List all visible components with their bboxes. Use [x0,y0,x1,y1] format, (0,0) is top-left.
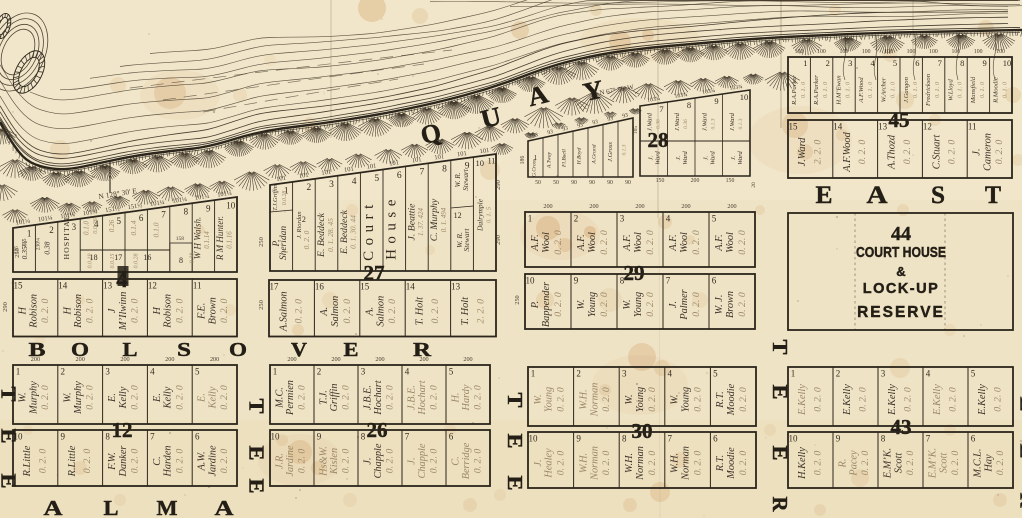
svg-text:Berridge: Berridge [461,442,472,479]
svg-text:0. 2. 0: 0. 2. 0 [82,449,93,474]
svg-text:101: 101 [366,162,377,170]
svg-text:5: 5 [712,214,717,224]
svg-text:0. 1. 0: 0. 1. 0 [912,81,919,98]
svg-text:100: 100 [996,49,1005,55]
svg-text:Hochart: Hochart [417,379,428,415]
svg-text:0. 2. 0: 0. 2. 0 [950,451,961,476]
svg-text:100: 100 [907,49,916,55]
svg-text:14: 14 [406,282,416,292]
svg-text:2: 2 [576,369,581,379]
svg-text:101: 101 [344,166,355,174]
svg-text:100: 100 [862,49,871,55]
svg-text:3: 3 [848,58,852,68]
svg-text:W.: W. [576,299,587,309]
svg-text:100: 100 [884,49,893,55]
svg-text:0. 2. 0: 0. 2. 0 [692,451,703,476]
svg-text:Robison: Robison [163,294,174,329]
svg-text:2: 2 [317,367,322,377]
svg-text:0. 2. 0: 0. 2. 0 [342,299,353,324]
svg-text:1: 1 [16,367,21,377]
svg-text:0. 2. 0: 0. 2. 0 [947,387,958,412]
svg-text:0. 2. 0: 0. 2. 0 [296,385,307,410]
svg-text:Scott: Scott [893,452,904,474]
svg-text:6: 6 [139,213,144,223]
svg-text:0.0.28: 0.0.28 [282,191,288,206]
svg-text:Palmer: Palmer [679,288,690,320]
svg-text:W.: W. [624,394,635,404]
svg-text:A: A [44,496,64,518]
svg-text:10: 10 [526,276,536,286]
svg-text:J.Ward: J.Ward [797,137,808,167]
svg-text:0. 2. 0: 0. 2. 0 [737,230,748,255]
svg-text:J.: J. [675,155,682,160]
svg-text:W.: W. [533,394,544,404]
svg-text:0. 2. 0: 0. 2. 0 [645,230,656,255]
svg-text:J.Ward: J.Ward [702,112,709,131]
svg-text:0.1.0: 0.1.0 [152,222,161,237]
svg-text:J.: J. [668,301,679,308]
svg-text:200: 200 [727,203,736,210]
svg-text:200: 200 [76,356,85,363]
svg-text:E.: E. [197,393,208,403]
svg-text:0. 2. 0: 0. 2. 0 [219,449,230,474]
svg-text:0. 2. 0: 0. 2. 0 [601,387,612,412]
svg-text:0.1.14: 0.1.14 [203,231,211,249]
svg-text:11: 11 [193,281,202,291]
svg-text:Permien: Permien [285,380,296,416]
svg-text:Hs&W.: Hs&W. [318,446,329,477]
svg-text:J.Ward: J.Ward [674,112,681,131]
svg-text:0.1.4: 0.1.4 [129,220,138,235]
svg-text:Ward: Ward [737,150,744,164]
svg-text:9: 9 [576,434,581,444]
svg-text:Pacey: Pacey [848,450,859,477]
svg-text:290: 290 [495,180,502,190]
svg-text:0. 2. 0: 0. 2. 0 [556,451,567,476]
svg-text:Robison: Robison [28,294,39,329]
svg-text:0. 2. 0: 0. 2. 0 [40,385,51,410]
svg-text:290: 290 [2,302,9,312]
svg-text:J.R.: J.R. [274,453,285,469]
svg-text:7: 7 [668,434,673,444]
svg-text:T. Holt: T. Holt [460,296,471,326]
svg-text:9: 9 [61,432,66,442]
svg-text:8: 8 [179,256,183,265]
svg-text:Robison: Robison [73,294,84,329]
svg-text:R.A.Parker: R.A.Parker [813,75,820,106]
svg-text:1: 1 [531,369,536,379]
svg-text:0. 2. 0: 0. 2. 0 [947,140,958,165]
svg-text:H.Kelly: H.Kelly [797,447,808,480]
svg-text:M.C.L.: M.C.L. [973,449,984,479]
svg-text:8: 8 [620,276,625,286]
svg-text:235: 235 [22,239,28,248]
svg-text:6: 6 [915,58,919,68]
svg-text:A: A [867,182,888,209]
svg-text:5: 5 [116,216,121,226]
svg-text:3: 3 [361,367,366,377]
svg-text:0. 2. 0: 0. 2. 0 [691,292,702,317]
svg-text:200: 200 [331,356,340,363]
svg-text:0. 1. 0: 0. 1. 0 [889,81,896,98]
svg-text:0. 2. 0: 0. 2. 0 [860,451,871,476]
svg-text:10: 10 [475,158,484,168]
svg-text:E: E [245,479,269,494]
svg-text:10: 10 [1003,58,1012,68]
svg-text:Ward: Ward [654,150,661,164]
svg-text:Young: Young [633,292,644,317]
svg-text:Kelly: Kelly [163,386,174,409]
svg-text:A.F.: A.F. [668,234,679,251]
svg-text:A.W.: A.W. [197,451,208,471]
svg-text:A.F.: A.F. [530,234,541,251]
svg-text:4: 4 [666,214,671,224]
svg-text:7: 7 [926,434,931,444]
svg-text:M: M [157,496,178,518]
svg-text:12: 12 [148,281,157,291]
svg-text:43: 43 [891,415,912,439]
svg-text:7: 7 [161,210,166,220]
svg-text:0. 2. 0: 0. 2. 0 [691,230,702,255]
svg-text:Wool: Wool [725,232,736,253]
svg-text:0.1.3: 0.1.3 [622,144,628,155]
svg-text:A.Grund: A.Grund [592,144,598,164]
svg-text:0. 2. 0: 0. 2. 0 [994,140,1005,165]
svg-text:Stewart: Stewart [462,228,471,252]
svg-text:250: 250 [258,300,265,310]
svg-text:6: 6 [712,276,717,286]
svg-text:H.Boyd: H.Boyd [577,147,583,165]
svg-text:0. 2. 0: 0. 2. 0 [296,449,307,474]
svg-text:Murphy: Murphy [73,381,84,415]
svg-text:8: 8 [442,165,447,175]
svg-text:H.M’Ewan: H.M’Ewan [836,75,843,106]
svg-text:200: 200 [543,203,552,210]
svg-text:9: 9 [836,434,841,444]
svg-text:15: 15 [14,281,24,291]
svg-text:E: E [503,476,527,491]
svg-text:R.Little: R.Little [67,445,78,477]
svg-text:20: 20 [751,182,757,188]
svg-text:165: 165 [633,126,639,135]
svg-text:14: 14 [58,281,68,291]
svg-text:16: 16 [143,253,151,262]
svg-text:J.B.E.: J.B.E. [362,385,373,410]
svg-text:7: 7 [938,58,942,68]
svg-text:5: 5 [449,367,454,377]
svg-text:0. 2. 0: 0. 2. 0 [428,385,439,410]
svg-text:0. 2. 0: 0. 2. 0 [857,387,868,412]
svg-text:J.: J. [972,148,983,155]
svg-text:Jardine: Jardine [285,445,296,477]
svg-text:T: T [0,387,21,402]
svg-text:W.H.: W.H. [578,389,589,409]
svg-text:0. 2. 0: 0. 2. 0 [40,298,51,323]
svg-text:101: 101 [389,159,400,167]
svg-text:Court: Court [361,199,377,261]
svg-text:29: 29 [624,261,645,285]
svg-text:0. 2. 0: 0. 2. 0 [174,449,185,474]
svg-text:100: 100 [974,49,983,55]
svg-text:Wool: Wool [679,232,690,253]
svg-text:50: 50 [535,180,541,186]
svg-text:0. 2. 0: 0. 2. 0 [857,140,868,165]
svg-text:Murphy: Murphy [28,381,39,415]
svg-text:Young: Young [587,292,598,317]
svg-text:0. 2. 0: 0. 2. 0 [130,298,141,323]
svg-text:Wool: Wool [541,232,552,253]
svg-text:0. 2. 0: 0. 2. 0 [387,299,398,324]
svg-text:Wool: Wool [633,232,644,253]
svg-text:Harden: Harden [163,445,174,477]
svg-text:W. J.: W. J. [714,295,725,315]
svg-text:30: 30 [632,419,653,443]
svg-text:200: 200 [31,356,40,363]
svg-text:G.Cross: G.Cross [532,159,538,177]
svg-text:3: 3 [622,369,627,379]
svg-text:0. 2. 0: 0. 2. 0 [85,298,96,323]
svg-text:H.: H. [450,392,461,403]
svg-text:Chapple: Chapple [417,443,428,478]
svg-text:R.Moodie: R.Moodie [992,77,999,104]
svg-text:11: 11 [488,157,496,166]
svg-text:0. 2. 0: 0. 2. 0 [37,449,48,474]
svg-text:2: 2 [302,215,306,224]
svg-text:200: 200 [375,356,384,363]
svg-text:0.0.15: 0.0.15 [110,254,116,269]
svg-text:0. 2. 0: 0. 2. 0 [130,385,141,410]
svg-text:0. 1. 0: 0. 1. 0 [979,81,986,98]
svg-text:4: 4 [150,367,155,377]
svg-text:150: 150 [726,178,735,184]
svg-text:0. 2. 0: 0. 2. 0 [174,298,185,323]
svg-text:0. 2. 0: 0. 2. 0 [384,385,395,410]
svg-text:0.26: 0.26 [108,219,116,232]
svg-text:5: 5 [195,367,200,377]
svg-text:7: 7 [405,432,410,442]
svg-text:Norman: Norman [589,446,600,481]
svg-text:10: 10 [789,434,799,444]
svg-text:T: T [985,182,1001,209]
svg-text:Salmon: Salmon [330,296,341,327]
svg-text:8: 8 [622,434,627,444]
svg-text:W.Lloyd: W.Lloyd [948,79,955,101]
svg-text:0. 2. 0: 0. 2. 0 [472,385,483,410]
svg-text:W.: W. [62,392,73,402]
svg-text:0. 2. 0: 0. 2. 0 [384,449,395,474]
svg-text:8: 8 [960,58,964,68]
svg-text:250: 250 [14,248,21,258]
svg-text:6: 6 [713,434,718,444]
svg-text:E: E [0,474,21,489]
svg-text:0. 2. 0: 0. 2. 0 [219,385,230,410]
svg-text:8: 8 [184,207,189,217]
svg-text:200: 200 [419,356,428,363]
svg-text:101: 101 [411,156,422,164]
svg-text:0. 2. 0: 0. 2. 0 [472,449,483,474]
svg-text:R.Little: R.Little [22,445,33,477]
svg-text:200: 200 [120,356,129,363]
svg-text:H: H [62,307,73,316]
svg-text:E: E [0,429,21,444]
svg-text:9: 9 [317,432,322,442]
svg-text:Fl.Buell: Fl.Buell [562,149,568,168]
svg-text:Salmon: Salmon [375,296,386,327]
svg-text:0.0.26: 0.0.26 [92,217,99,233]
svg-text:0. 2. 0: 0. 2. 0 [812,387,823,412]
svg-text:M.C.: M.C. [274,387,285,409]
svg-text:3: 3 [620,214,625,224]
svg-text:7: 7 [659,104,663,114]
svg-text:290: 290 [495,235,502,245]
svg-text:250: 250 [258,237,265,247]
svg-text:6: 6 [195,432,200,442]
svg-text:0. 2. 0: 0. 2. 0 [430,299,441,324]
svg-text:0. 2. 0: 0. 2. 0 [219,298,230,323]
svg-text:J.Gangon: J.Gangon [903,76,910,103]
svg-text:5: 5 [893,58,897,68]
svg-text:14: 14 [833,122,843,132]
svg-text:5: 5 [713,369,718,379]
svg-text:150: 150 [656,178,665,184]
svg-text:A.Tway: A.Tway [547,151,553,169]
svg-text:28: 28 [648,128,669,152]
svg-text:0. 2. 0: 0. 2. 0 [645,292,656,317]
svg-text:Hardy: Hardy [461,384,472,411]
svg-text:4: 4 [352,177,357,187]
svg-text:Brown: Brown [208,297,219,324]
svg-text:101: 101 [298,172,309,180]
svg-text:0. 2. 0: 0. 2. 0 [905,451,916,476]
svg-text:0. 1. 0: 0. 1. 0 [957,81,964,98]
svg-text:E: E [245,446,269,461]
svg-text:10: 10 [740,92,749,102]
svg-text:17: 17 [270,282,280,292]
svg-text:101: 101 [457,150,468,158]
svg-text:0. 2. 0: 0. 2. 0 [992,387,1003,412]
svg-text:E: E [768,446,792,461]
svg-text:E: E [816,182,833,209]
svg-text:Hay: Hay [983,454,994,473]
svg-text:A.Thozd: A.Thozd [887,134,898,170]
svg-text:0. 1. 5: 0. 1. 5 [485,206,492,223]
svg-text:90: 90 [571,180,577,186]
svg-text:J.: J. [533,459,544,466]
svg-text:15: 15 [360,282,370,292]
svg-text:0. 2. 0: 0. 2. 0 [812,451,823,476]
svg-text:Mansfield: Mansfield [970,76,977,104]
svg-text:200: 200 [165,356,174,363]
svg-text:W.: W. [670,394,681,404]
svg-text:0. 2. 0: 0. 2. 0 [738,387,749,412]
svg-text:A.F.Wood: A.F.Wood [842,131,853,172]
svg-text:A.: A. [365,307,376,317]
svg-text:W.H.: W.H. [624,453,635,473]
svg-text:Danker: Danker [118,445,129,478]
svg-text:9: 9 [574,276,579,286]
svg-text:Stewart: Stewart [462,168,470,190]
svg-text:3: 3 [329,180,334,190]
svg-text:Young: Young [681,387,692,412]
svg-text:J. Beattie: J. Beattie [407,203,418,241]
svg-text:13: 13 [103,281,113,291]
svg-text:Fredrickson: Fredrickson [925,73,932,107]
svg-text:E: E [1016,397,1022,412]
svg-text:7: 7 [420,168,425,178]
svg-text:E.Kelly: E.Kelly [887,384,898,416]
svg-text:4: 4 [668,369,673,379]
svg-text:Dalrymple: Dalrymple [475,198,484,232]
svg-text:A.F.Wood: A.F.Wood [858,77,865,104]
svg-text:&: & [896,264,905,279]
svg-text:0. 2. 0: 0. 2. 0 [599,230,610,255]
svg-text:0. 2. 0: 0. 2. 0 [556,387,567,412]
svg-text:J.: J. [702,155,709,160]
svg-text:R.A.Parker: R.A.Parker [791,75,798,106]
svg-text:10: 10 [271,432,281,442]
svg-text:O: O [229,339,247,361]
svg-text:J.B.E.: J.B.E. [406,385,417,410]
svg-text:T: T [768,340,792,355]
svg-text:15: 15 [789,122,799,132]
svg-text:8: 8 [361,432,366,442]
svg-text:COURT HOUSE: COURT HOUSE [856,245,946,261]
svg-text:J.Gross: J.Gross [607,142,614,162]
svg-text:T.J.Griffin: T.J.Griffin [272,185,279,211]
svg-text:230¼: 230¼ [35,238,41,250]
svg-text:H: H [152,307,163,316]
svg-text:0. 2. 0: 0. 2. 0 [601,451,612,476]
svg-text:4: 4 [405,367,410,377]
svg-text:Norman: Norman [681,446,692,481]
svg-text:Healey: Healey [544,448,555,479]
svg-text:100: 100 [839,49,848,55]
svg-text:Sheridan: Sheridan [279,226,289,261]
svg-text:0. 1. 28. 45: 0. 1. 28. 45 [326,218,335,252]
svg-text:J.: J. [406,457,417,464]
svg-text:0. 2. 0: 0. 2. 0 [553,230,564,255]
svg-text:158: 158 [176,236,185,242]
svg-text:E: E [503,434,527,449]
svg-text:1: 1 [803,58,807,68]
svg-text:0.38: 0.38 [42,241,51,254]
svg-text:12: 12 [454,211,462,220]
svg-text:W H Walsh.: W H Walsh. [193,217,203,259]
svg-text:100: 100 [817,49,826,55]
svg-text:A.Salmon: A.Salmon [278,291,289,332]
svg-text:Wool: Wool [587,232,598,253]
svg-text:0. 2. 0: 0. 2. 0 [737,292,748,317]
svg-text:7: 7 [150,432,155,442]
svg-text:0. 1. 30. 44: 0. 1. 30. 44 [348,215,357,249]
svg-text:16: 16 [315,282,325,292]
svg-text:200: 200 [589,203,598,210]
svg-text:0.1.3: 0.1.3 [711,118,717,129]
svg-text:2: 2 [574,214,579,224]
svg-text:2: 2 [836,369,841,379]
svg-text:101: 101 [321,169,332,177]
svg-text:J: J [107,308,118,313]
svg-text:0. 1. 0: 0. 1. 0 [800,81,807,98]
svg-text:8: 8 [105,432,110,442]
svg-text:186: 186 [520,156,526,165]
svg-text:A.F.: A.F. [714,234,725,251]
svg-text:200: 200 [287,356,296,363]
svg-text:0. 2. 0: 0. 2. 0 [647,387,658,412]
svg-text:0. 1. 0: 0. 1. 0 [1001,81,1008,98]
svg-text:E: E [1016,444,1022,459]
svg-text:E: E [768,385,792,400]
